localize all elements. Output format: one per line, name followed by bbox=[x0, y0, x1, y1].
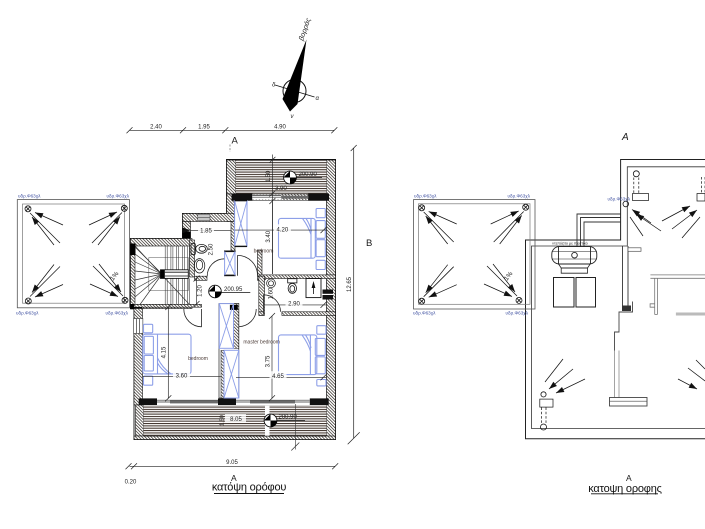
svg-text:9.05: 9.05 bbox=[226, 460, 238, 466]
svg-text:υδρ.Φ63χλ: υδρ.Φ63χλ bbox=[106, 311, 129, 316]
svg-text:2.40: 2.40 bbox=[150, 124, 162, 130]
svg-text:4.65: 4.65 bbox=[272, 374, 284, 380]
svg-text:4.90: 4.90 bbox=[274, 124, 286, 130]
svg-text:υδρ.Φ63χλ: υδρ.Φ63χλ bbox=[414, 194, 437, 199]
svg-text:4.20: 4.20 bbox=[277, 227, 289, 233]
svg-text:1.95: 1.95 bbox=[198, 124, 210, 130]
svg-text:3.75: 3.75 bbox=[265, 355, 271, 367]
svg-text:4.15: 4.15 bbox=[162, 346, 168, 358]
svg-text:3.90: 3.90 bbox=[275, 186, 287, 192]
svg-text:3.40: 3.40 bbox=[266, 230, 272, 242]
svg-text:ν: ν bbox=[291, 114, 294, 120]
svg-text:A: A bbox=[621, 132, 629, 143]
svg-text:υδρ.Φ63χλ: υδρ.Φ63χλ bbox=[18, 194, 41, 199]
svg-text:bedroom: bedroom bbox=[254, 249, 274, 255]
svg-text:2.90: 2.90 bbox=[288, 302, 300, 308]
svg-text:0.20: 0.20 bbox=[125, 480, 137, 486]
svg-text:200.90: 200.90 bbox=[279, 414, 298, 420]
svg-text:B: B bbox=[366, 238, 372, 249]
svg-text:1.20: 1.20 bbox=[198, 285, 204, 297]
svg-text:master bedroom: master bedroom bbox=[243, 340, 279, 346]
svg-text:υδρ.Φ63χλ: υδρ.Φ63χλ bbox=[413, 311, 436, 316]
svg-text:υδρ.Φ63χλ: υδρ.Φ63χλ bbox=[608, 197, 631, 202]
svg-text:8.05: 8.05 bbox=[230, 417, 242, 423]
svg-text:κατοψη οροφης: κατοψη οροφης bbox=[588, 483, 662, 495]
svg-text:2.50: 2.50 bbox=[209, 243, 215, 255]
svg-text:υδρ.Φ63χλ: υδρ.Φ63χλ bbox=[506, 311, 529, 316]
svg-text:υδρ.Φ63χλ: υδρ.Φ63χλ bbox=[16, 311, 39, 316]
svg-text:υδρ.Φ63χλ: υδρ.Φ63χλ bbox=[508, 194, 531, 199]
svg-text:200.90: 200.90 bbox=[299, 172, 318, 178]
svg-text:α: α bbox=[316, 96, 320, 102]
svg-text:A: A bbox=[232, 136, 239, 147]
svg-text:1.50: 1.50 bbox=[219, 415, 225, 426]
svg-text:A: A bbox=[626, 473, 632, 483]
svg-text:κατόψη ορόφου: κατόψη ορόφου bbox=[212, 482, 287, 494]
svg-text:1.85: 1.85 bbox=[200, 228, 212, 234]
svg-text:1.50: 1.50 bbox=[266, 170, 272, 182]
svg-text:υδρ.Φ63χλ: υδρ.Φ63χλ bbox=[107, 194, 130, 199]
svg-text:12.65: 12.65 bbox=[347, 276, 353, 292]
svg-text:1.60: 1.60 bbox=[268, 287, 274, 299]
svg-text:200.95: 200.95 bbox=[224, 287, 243, 293]
svg-text:ντεπόζιτο με πιεστικό: ντεπόζιτο με πιεστικό bbox=[552, 241, 588, 245]
svg-text:bedroom: bedroom bbox=[188, 356, 208, 362]
svg-text:3.60: 3.60 bbox=[176, 373, 188, 379]
